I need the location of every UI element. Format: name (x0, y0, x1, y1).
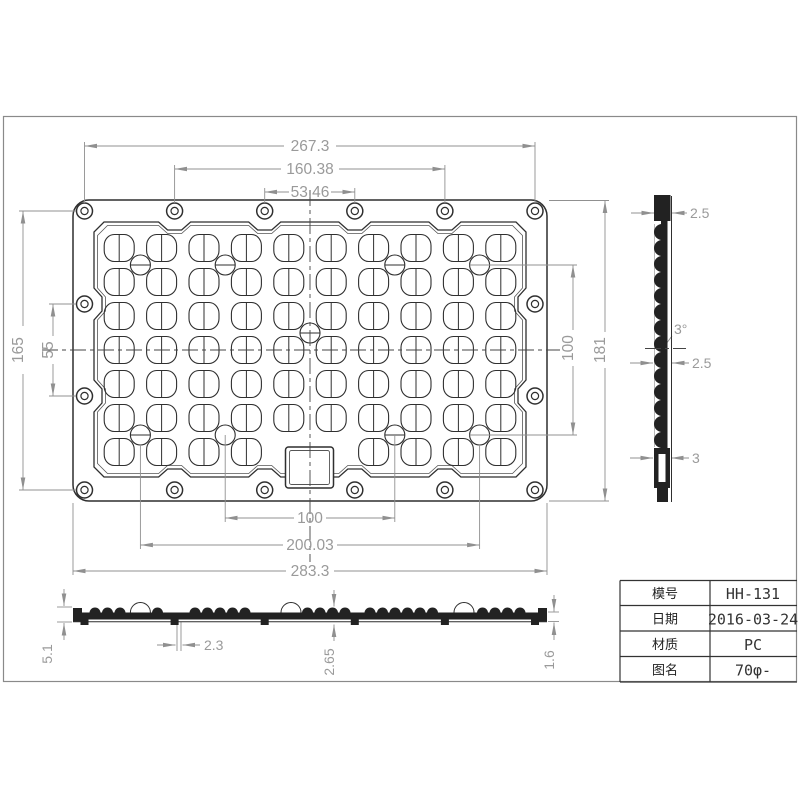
dim-hole-span-mid: 160.38 (286, 161, 333, 178)
square-cutout-outer (286, 447, 334, 488)
profile-post (261, 620, 269, 626)
title-block-label-date: 日期 (652, 612, 678, 627)
sheet-background (0, 0, 800, 800)
dim-hole-span-inner: 53.46 (291, 184, 330, 201)
mounting-hole (527, 388, 543, 404)
mounting-hole (347, 482, 363, 498)
mounting-hole (167, 482, 183, 498)
title-block-value-date: 2016-03-24 (708, 611, 798, 629)
dim-total-height: 181 (592, 337, 609, 363)
title-block-label-model: 模号 (652, 586, 678, 601)
profile-post (171, 620, 179, 626)
title-block-label-material: 材质 (652, 637, 678, 652)
mounting-hole (527, 203, 543, 219)
dim-total-width: 283.3 (291, 563, 330, 580)
profile-body (73, 613, 547, 620)
mounting-hole (77, 482, 93, 498)
side-foot-slot (659, 454, 666, 482)
dim-hole-span-outer: 267.3 (291, 138, 330, 155)
mounting-hole (527, 296, 543, 312)
mounting-hole (347, 203, 363, 219)
title-block-value-name: 70φ- (735, 662, 771, 680)
dim-led-span-vertical: 100 (560, 335, 577, 361)
cad-sheet: 267.3 160.38 53.46 165 55 100 181 100 20… (0, 0, 800, 800)
dim-profile-wall: 2.65 (321, 648, 337, 675)
side-foot-tab (657, 488, 668, 502)
mounting-hole (77, 296, 93, 312)
dim-side-mid-thickness: 2.5 (692, 355, 712, 371)
title-block-value-material: PC (744, 636, 762, 654)
profile-post (81, 620, 89, 626)
dim-side-top-thickness: 2.5 (690, 205, 710, 221)
dim-height-holes-mid: 55 (40, 341, 57, 358)
profile-post (351, 620, 359, 626)
dim-side-foot-thickness: 3 (692, 450, 700, 466)
mounting-hole (77, 388, 93, 404)
dim-led-span-horizontal: 100 (297, 510, 323, 527)
dim-height-holes-outer: 165 (10, 337, 27, 363)
mounting-hole (257, 203, 273, 219)
profile-end-right (538, 608, 547, 622)
mounting-hole (437, 203, 453, 219)
mounting-hole (527, 482, 543, 498)
dim-profile-edge: 1.6 (541, 650, 557, 670)
mounting-hole (77, 203, 93, 219)
profile-post (531, 620, 539, 626)
profile-post (441, 620, 449, 626)
mounting-hole (437, 482, 453, 498)
title-block-label-name: 图名 (652, 663, 678, 678)
title-block-value-model: HH-131 (726, 585, 780, 603)
side-top-cap (654, 195, 671, 221)
mounting-hole (257, 482, 273, 498)
mounting-hole (167, 203, 183, 219)
dim-led-span-outer: 200.03 (286, 537, 333, 554)
dim-profile-rib: 2.3 (204, 637, 224, 653)
dim-side-draft-angle: 3° (674, 321, 687, 337)
dim-profile-height: 5.1 (39, 644, 55, 664)
